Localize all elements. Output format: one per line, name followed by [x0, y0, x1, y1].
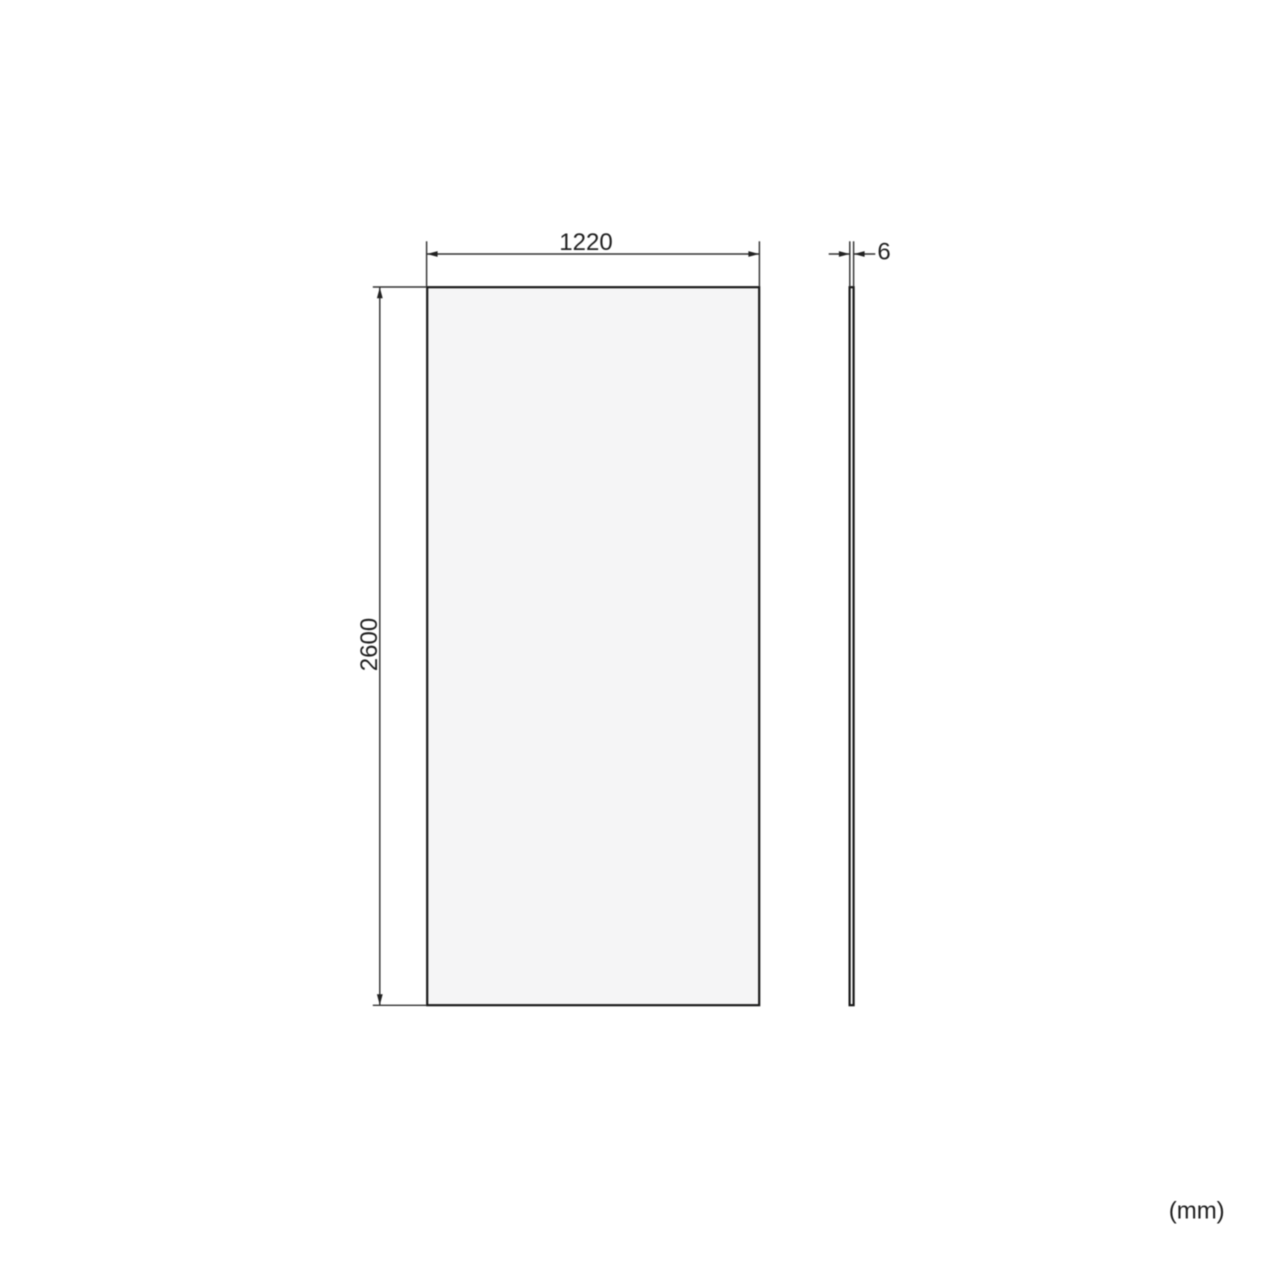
- svg-text:(mm): (mm): [1169, 1198, 1225, 1225]
- svg-text:6: 6: [877, 239, 890, 266]
- svg-text:1220: 1220: [559, 229, 612, 256]
- svg-text:2600: 2600: [356, 618, 383, 671]
